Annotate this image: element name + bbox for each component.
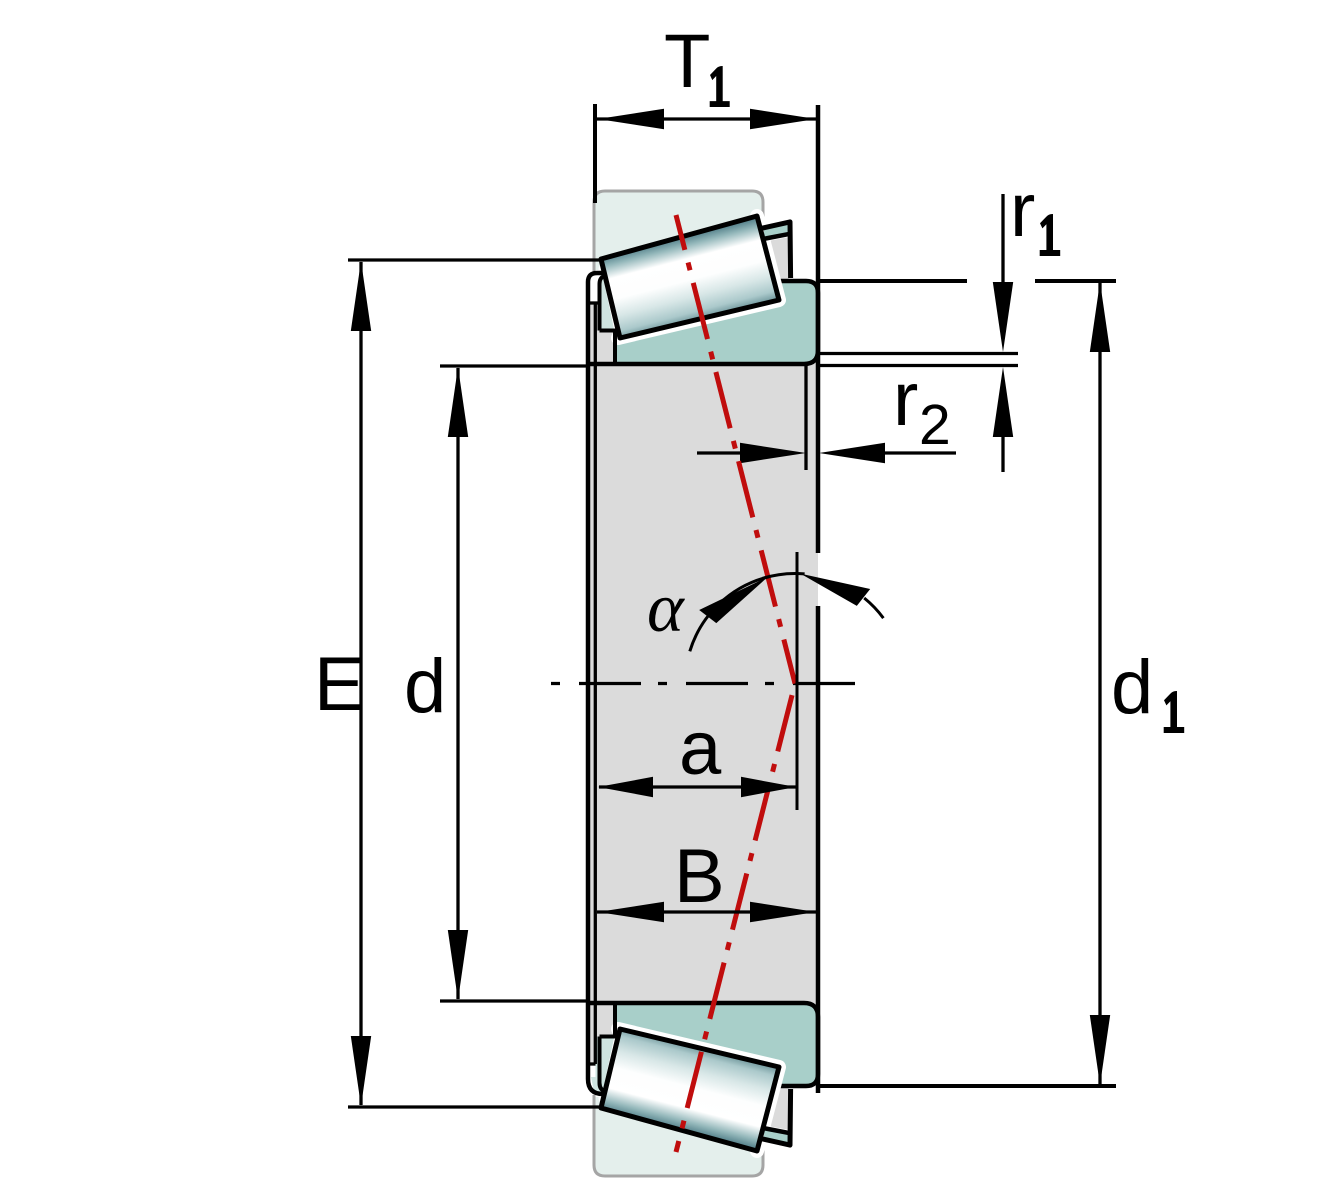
svg-text:d: d [1111,645,1153,730]
svg-text:2: 2 [919,393,951,457]
svg-text:E: E [314,642,365,727]
svg-text:B: B [674,834,725,919]
svg-text:r: r [1010,168,1035,253]
svg-text:T: T [664,19,710,104]
svg-text:r: r [893,357,918,442]
svg-text:d: d [404,644,446,729]
svg-text:α: α [647,570,685,647]
svg-text:a: a [679,706,722,791]
